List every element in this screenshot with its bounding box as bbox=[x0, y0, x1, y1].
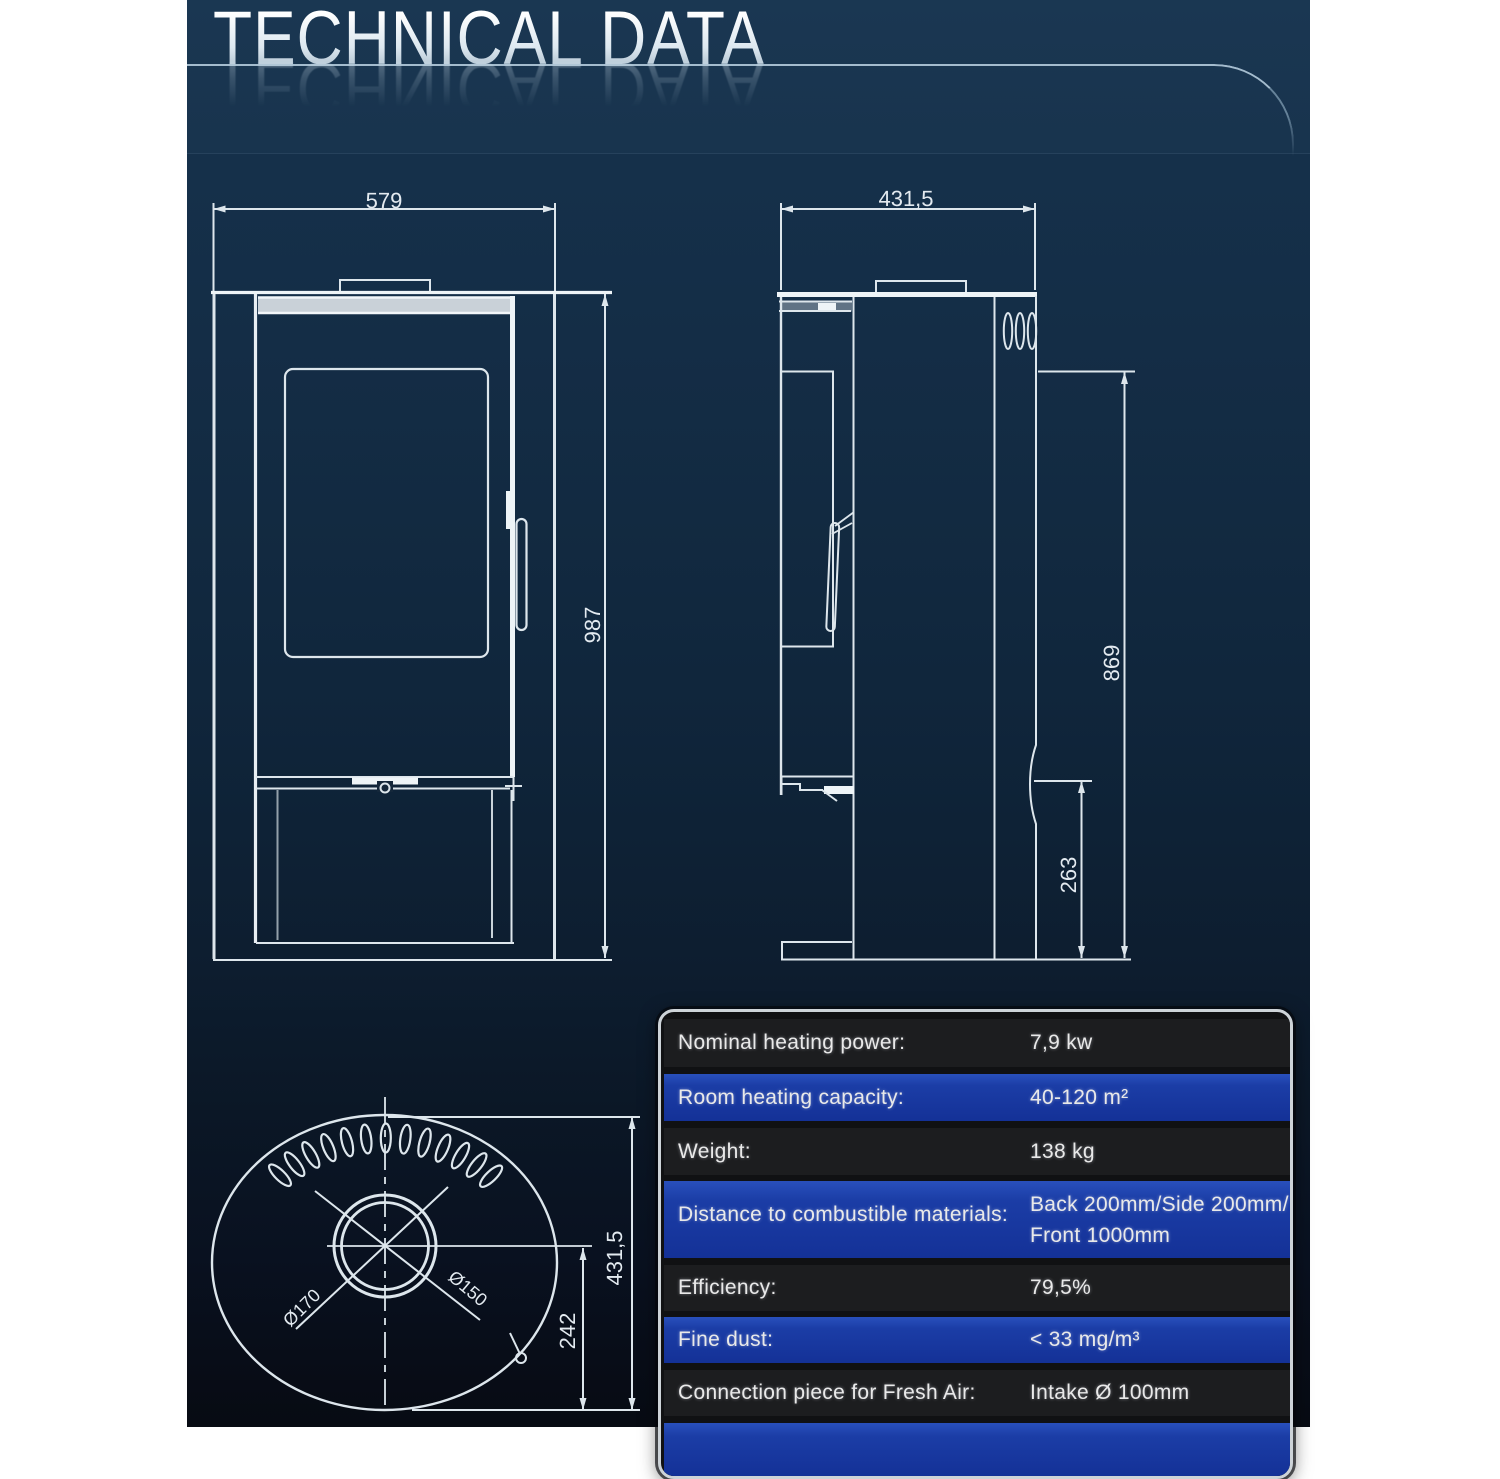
svg-text:Ø150: Ø150 bbox=[445, 1267, 492, 1311]
svg-text:431,5: 431,5 bbox=[602, 1230, 627, 1285]
svg-text:431,5: 431,5 bbox=[878, 186, 933, 211]
svg-text:987: 987 bbox=[580, 607, 605, 644]
svg-text:242: 242 bbox=[555, 1313, 580, 1350]
svg-text:869: 869 bbox=[1099, 645, 1124, 682]
svg-text:579: 579 bbox=[366, 188, 403, 213]
svg-text:263: 263 bbox=[1056, 857, 1081, 894]
